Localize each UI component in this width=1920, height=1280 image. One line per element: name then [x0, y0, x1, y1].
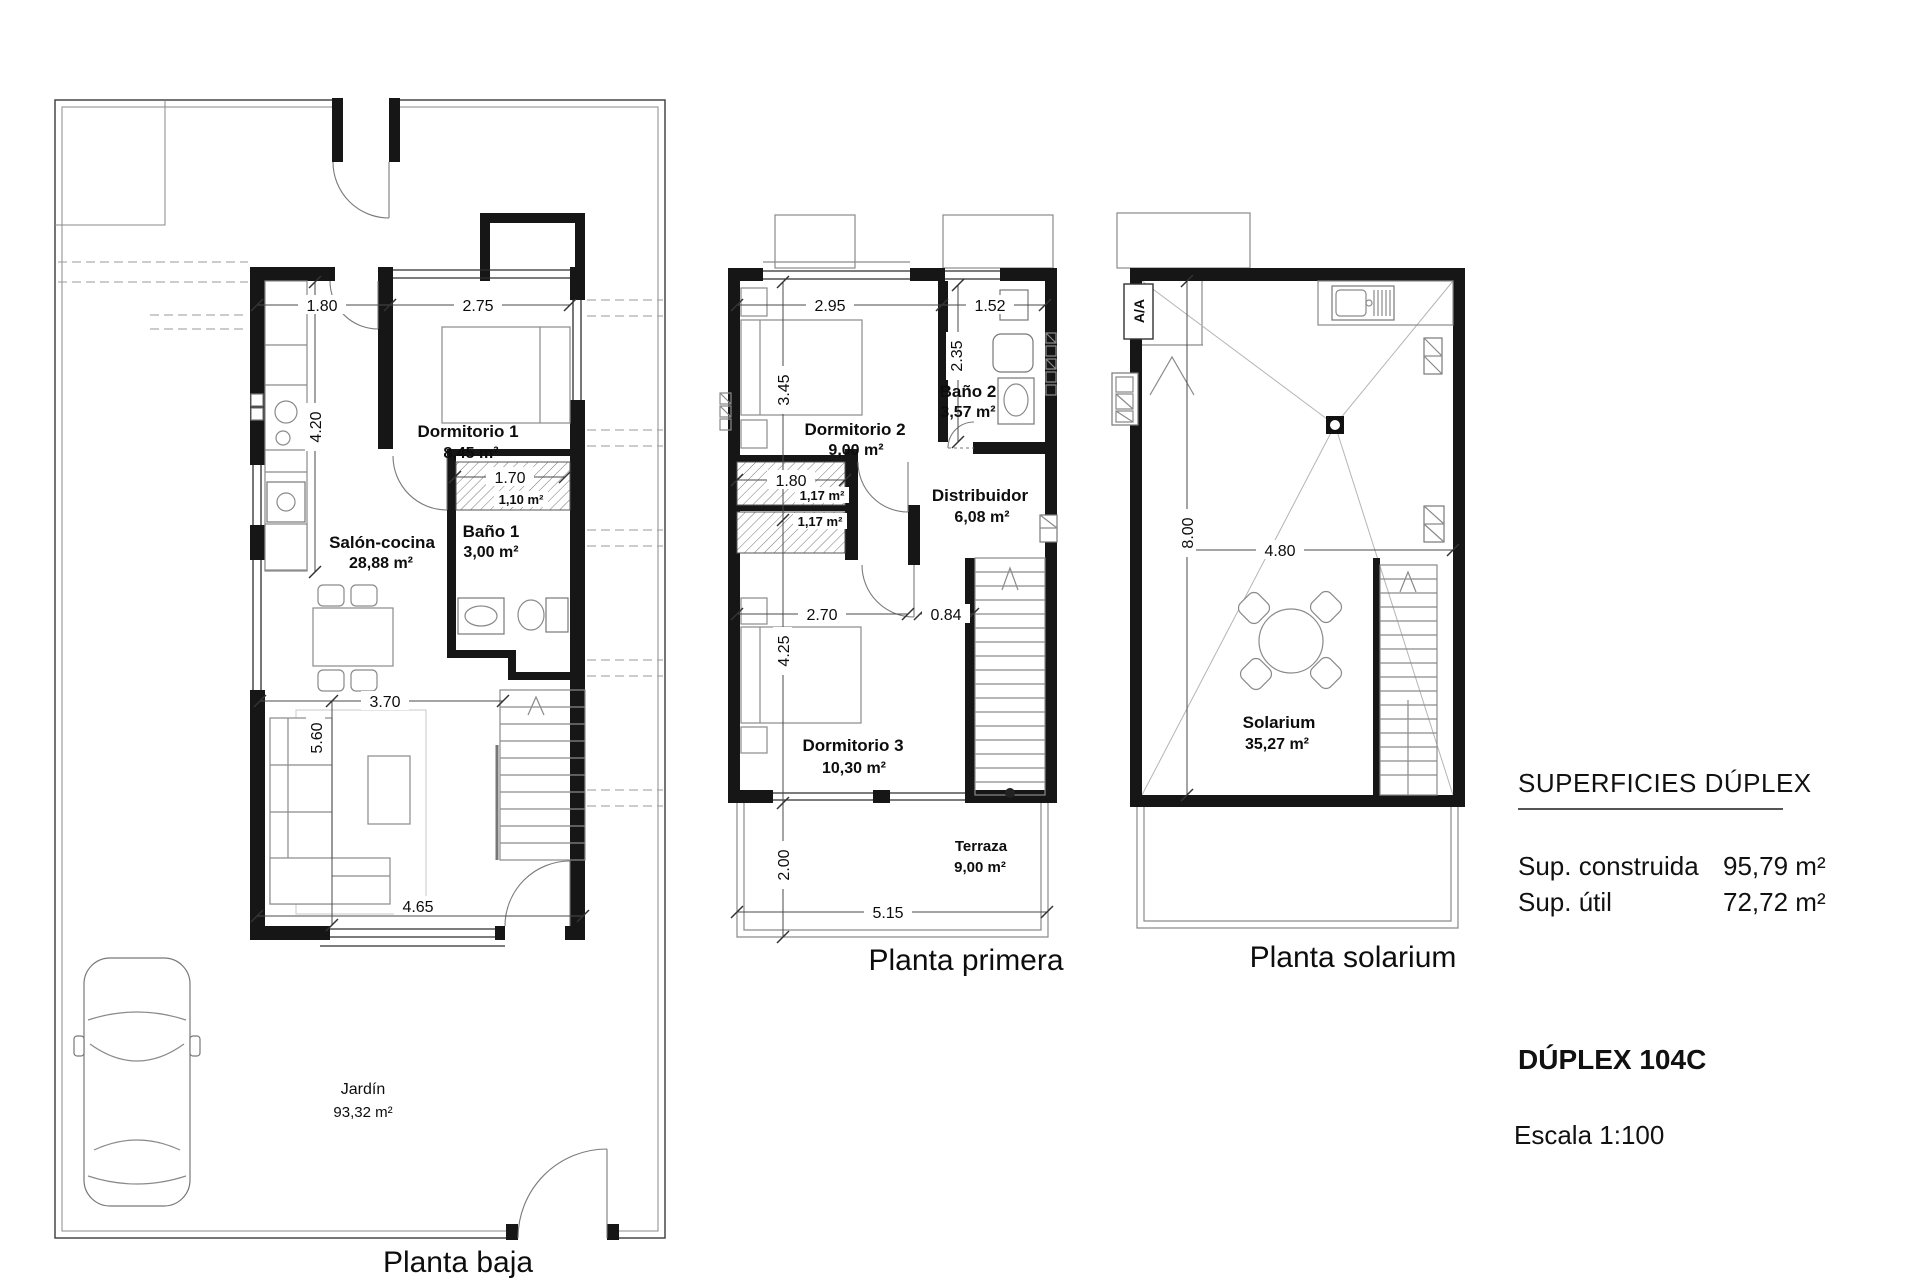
dim-label: 4.80: [1264, 543, 1295, 560]
wardrobe-area: 1,17 m²: [800, 488, 845, 503]
room-name: Baño 1: [463, 522, 520, 541]
room-area: 9,00 m²: [828, 442, 883, 459]
scale-label: Escala 1:100: [1514, 1120, 1664, 1151]
patio-table-set: [1236, 589, 1345, 693]
utility-symbols: [1112, 338, 1444, 542]
dim-label: 8.00: [1180, 517, 1197, 548]
room-labels-ground: Dormitorio 1 8,45 m² Salón-cocina 28,88 …: [329, 422, 548, 1121]
dim-label: 3.70: [369, 694, 400, 711]
sup-util-value: 72,72 m²: [1723, 884, 1826, 920]
dim-label: 2.35: [949, 340, 966, 371]
roof-drain: [1326, 416, 1344, 434]
dim-label: 2.75: [462, 298, 493, 315]
dim-label: 1.80: [306, 298, 337, 315]
dim-label: 1.70: [494, 470, 525, 487]
room-name: Distribuidor: [932, 486, 1029, 505]
surface-summary-panel: SUPERFICIES DÚPLEX Sup. construida 95,79…: [1518, 768, 1826, 920]
car: [74, 958, 200, 1206]
plan-title-solarium: Planta solarium: [1250, 941, 1457, 974]
bed-dormitorio2: [741, 320, 862, 415]
dim-label: 4.20: [308, 411, 325, 442]
room-area: 9,00 m²: [954, 859, 1006, 876]
room-area: 28,88 m²: [349, 555, 413, 572]
room-area: 8,45 m²: [443, 445, 498, 462]
sup-construida-value: 95,79 m²: [1723, 848, 1826, 884]
room-name: Jardín: [341, 1081, 385, 1098]
sup-construida-label: Sup. construida: [1518, 848, 1723, 884]
room-name: Solarium: [1243, 713, 1316, 732]
floorplan-sheet: 1.80 2.75 4.20 1.70 3.70 5.60 4.65 Dormi…: [0, 0, 1920, 1280]
sink-counter: [1318, 281, 1453, 325]
plan-title-primera: Planta primera: [868, 944, 1063, 977]
dim-label: 0.84: [930, 607, 961, 624]
dim-label: 4.25: [776, 635, 793, 666]
sup-construida-row: Sup. construida 95,79 m²: [1518, 848, 1826, 884]
staircase-first: [975, 558, 1045, 798]
surface-rows: Sup. construida 95,79 m² Sup. útil 72,72…: [1518, 848, 1826, 920]
staircase-solarium: [1380, 565, 1437, 795]
dim-label: 2.00: [776, 849, 793, 880]
dim-label: 4.65: [402, 899, 433, 916]
room-area: 3,00 m²: [463, 544, 518, 561]
light-shaft: [1117, 213, 1250, 268]
room-name: Dormitorio 2: [804, 420, 905, 439]
room-area: 3,57 m²: [940, 404, 995, 421]
light-shaft: [775, 215, 855, 268]
room-name: Dormitorio 3: [802, 736, 903, 755]
wardrobe-area: 1,10 m²: [499, 492, 544, 507]
room-labels-solarium: Solarium 35,27 m²: [1243, 713, 1316, 753]
sup-util-row: Sup. útil 72,72 m²: [1518, 884, 1826, 920]
bathroom1-fixtures: [458, 598, 568, 634]
room-area: 93,32 m²: [333, 1104, 392, 1121]
room-area: 6,08 m²: [954, 509, 1009, 526]
room-name: Salón-cocina: [329, 533, 435, 552]
planta-primera-plan: 2.95 1.52 3.45 2.35 1.80 2.70 0.84 4.25 …: [720, 215, 1064, 977]
dim-label: 3.45: [776, 374, 793, 405]
dim-label: 5.60: [309, 722, 326, 753]
floorplan-drawing: 1.80 2.75 4.20 1.70 3.70 5.60 4.65 Dormi…: [0, 0, 1920, 1280]
bed-dormitorio3: [741, 627, 861, 723]
room-name: Terraza: [955, 838, 1008, 855]
lower-terrace-outline: [1137, 807, 1458, 928]
room-area: 10,30 m²: [822, 760, 886, 777]
sup-util-label: Sup. útil: [1518, 884, 1723, 920]
unit-title: DÚPLEX 104C: [1518, 1044, 1706, 1076]
dim-label: 1.52: [974, 298, 1005, 315]
coffee-table: [368, 756, 410, 824]
room-name: Baño 2: [940, 382, 997, 401]
wardrobe-area: 1,17 m²: [798, 514, 843, 529]
planta-baja-plan: 1.80 2.75 4.20 1.70 3.70 5.60 4.65 Dormi…: [55, 94, 665, 1279]
bed-dormitorio1: [442, 327, 570, 423]
room-name: Dormitorio 1: [417, 422, 518, 441]
dim-label: 5.15: [872, 905, 903, 922]
superficies-heading: SUPERFICIES DÚPLEX: [1518, 768, 1783, 810]
dim-label: 2.70: [806, 607, 837, 624]
dimensions-solarium: 8.00 4.80: [1177, 275, 1459, 801]
dining-table: [313, 608, 393, 666]
dim-label: 2.95: [814, 298, 845, 315]
planta-solarium-plan: A/A: [1112, 213, 1465, 974]
light-shaft: [943, 215, 1053, 268]
ac-unit-label: A/A: [1131, 299, 1147, 323]
room-area: 35,27 m²: [1245, 736, 1309, 753]
ac-unit: A/A: [1124, 284, 1153, 339]
plan-title-baja: Planta baja: [383, 1246, 533, 1279]
